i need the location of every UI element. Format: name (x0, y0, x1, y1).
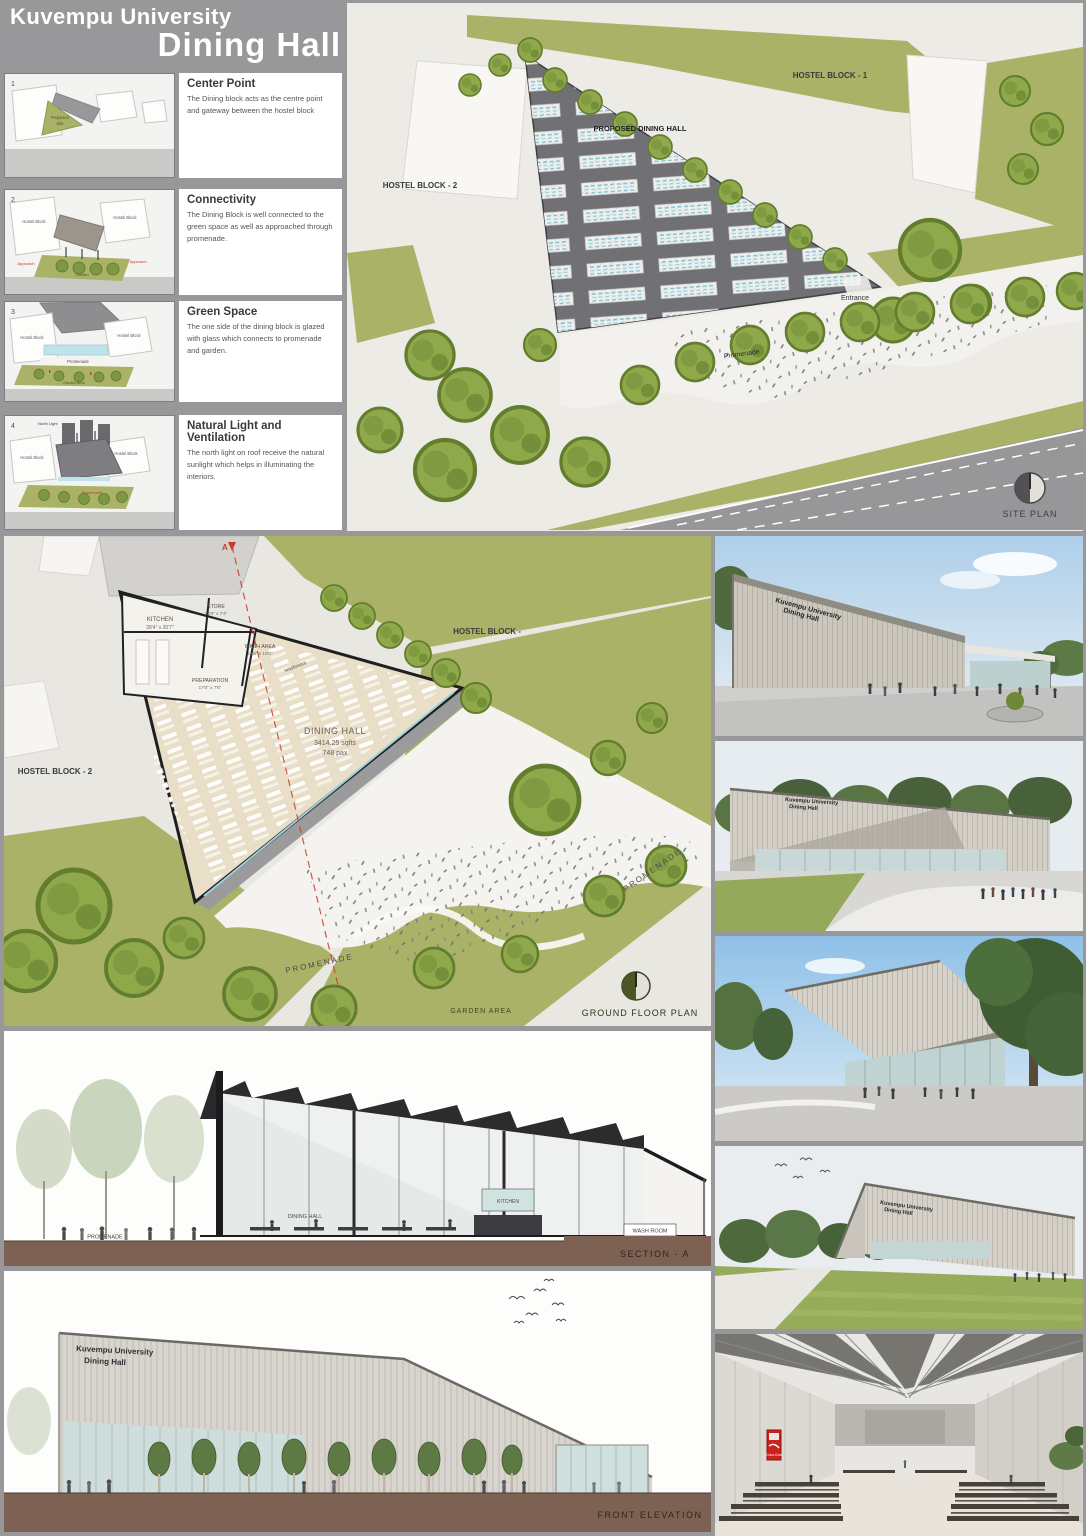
concept-4-number: 4 (11, 423, 15, 430)
concept-3-number: 3 (11, 309, 15, 316)
render-5-vending-machine: Coca-Cola (766, 1430, 781, 1460)
presentation-board: Kuvempu University Dining Hall Proposed … (0, 0, 1086, 1536)
concept-4-hostel-left: Hostel Block (20, 455, 44, 460)
floor-plan-label-store: STORE (207, 604, 225, 610)
concept-3-text: Green Space The one side of the dining b… (179, 301, 342, 402)
concept-2-approach-right: Approach (129, 259, 146, 264)
north-arrow-icon (1015, 473, 1045, 503)
section-marker-top: A (222, 543, 228, 552)
floor-plan-panel: A A DINING HALL 3414.25 sqfts 748 pax KI… (4, 536, 711, 1026)
concept-3-diagram: Hostel Block Hostel Block Promenade Gard… (4, 301, 175, 402)
concept-3-garden: Garden Area (63, 381, 85, 385)
floor-plan-label-kitchen-dim: 28'4" x 20'7" (146, 625, 174, 631)
site-plan-label-hostel-block-2: HOSTEL BLOCK - 2 (383, 181, 458, 190)
concept-2-approach-left: Approach (17, 261, 34, 266)
elevation-panel: Kuvempu University Dining Hall (4, 1271, 711, 1532)
section-label-washroom: WASH ROOM (633, 1229, 668, 1235)
concept-2-body: The Dining Block is well connected to th… (187, 209, 334, 245)
section-label-kitchen: KITCHEN (497, 1199, 519, 1205)
floor-plan-label-preparation-dim: 17'0" x 7'6" (199, 685, 222, 690)
floor-plan-label-kitchen: KITCHEN (147, 617, 173, 623)
site-plan-label-entrance: Entrance (841, 295, 869, 302)
north-arrow-icon-floor-plan (622, 972, 650, 1000)
concept-2-number: 2 (11, 197, 15, 204)
concept-4-body: The north light on roof receive the natu… (187, 447, 334, 483)
concept-2-garden: Garden (75, 272, 88, 277)
concept-2-diagram: Hostel Block Hostel Block Approach Appro… (4, 189, 175, 295)
floor-plan-label-preparation: PREPARATION (192, 678, 229, 684)
board-title-project: Dining Hall (0, 26, 341, 64)
concept-3-heading: Green Space (187, 306, 334, 318)
floor-plan-label-dining-area: 3414.25 sqfts (314, 740, 357, 747)
render-3 (715, 936, 1083, 1141)
render-4: Kuvempu University Dining Hall (715, 1146, 1083, 1329)
floor-plan-label-store-dim: 12'0" x 7'4" (205, 611, 228, 616)
concept-3-body: The one side of the dining block is glaz… (187, 321, 334, 357)
site-plan-label-proposed-dining-hall: PROPOSED DINING HALL (594, 124, 687, 133)
concept-3-hostel-right: Hostel Block (117, 333, 141, 338)
floor-plan-label-dining-hall: DINING HALL (304, 726, 366, 736)
site-plan-panel: HOSTEL BLOCK - 1 HOSTEL BLOCK - 2 PROPOS… (347, 3, 1083, 531)
concept-1-heading: Center Point (187, 78, 334, 90)
concept-2-hostel-left: Hostel Block (22, 219, 46, 224)
concept-1-text: Center Point The Dining block acts as th… (179, 73, 342, 178)
floor-plan-label-hostel-1: HOSTEL BLOCK - (453, 627, 521, 636)
section-panel: KITCHEN WASH ROOM DINING HALL PROMENADE … (4, 1031, 711, 1266)
render-1: Kuvempu University Dining Hall (715, 536, 1083, 736)
floor-plan-caption: GROUND FLOOR PLAN (582, 1008, 699, 1018)
site-plan-caption: SITE PLAN (1002, 509, 1057, 519)
concept-4-promenade: Promenade (82, 490, 103, 495)
concept-4-diagram: North Light Hostel Block Hostel Block Pr… (4, 415, 175, 530)
site-plan-label-hostel-block-1: HOSTEL BLOCK - 1 (793, 71, 868, 80)
floor-plan-label-wash-area: WASH AREA (245, 644, 276, 650)
section-label-dining-hall: DINING HALL (288, 1214, 323, 1220)
floor-plan-label-hostel-2: HOSTEL BLOCK - 2 (18, 767, 93, 776)
render-5-vending-brand: Coca-Cola (766, 1453, 781, 1457)
concept-4-hostel-right: Hostel Block (114, 451, 138, 456)
concept-2-heading: Connectivity (187, 194, 334, 206)
concept-4-north-light: North Light (38, 421, 58, 426)
floor-plan-label-garden-area: GARDEN AREA (450, 1008, 512, 1015)
concept-1-site-label-1: Proposed (51, 115, 70, 120)
section-label-promenade: PROMENADE (87, 1235, 123, 1241)
floor-plan-label-wash-area-dim: 13'6" x 10'0" (247, 651, 273, 656)
concept-4-heading: Natural Light and Ventilation (187, 420, 334, 444)
floor-plan-label-dining-pax: 748 pax (323, 750, 348, 757)
concept-3-hostel-left: Hostel Block (20, 335, 44, 340)
section-caption: SECTION - A (620, 1249, 690, 1259)
render-5: Coca-Cola (715, 1334, 1083, 1536)
concept-1-body: The Dining block acts as the centre poin… (187, 93, 334, 117)
concept-2-text: Connectivity The Dining Block is well co… (179, 189, 342, 295)
concept-1-number: 1 (11, 81, 15, 88)
concept-4-text: Natural Light and Ventilation The north … (179, 415, 342, 530)
render-2: Kuvempu University Dining Hall (715, 741, 1083, 931)
elevation-caption: FRONT ELEVATION (597, 1510, 702, 1520)
concept-2-hostel-right: Hostel Block (113, 215, 137, 220)
concept-1-diagram: Proposed Site 1 (4, 73, 175, 178)
concept-3-promenade: Promenade (67, 359, 89, 364)
concept-1-site-label-2: Site (56, 121, 64, 126)
